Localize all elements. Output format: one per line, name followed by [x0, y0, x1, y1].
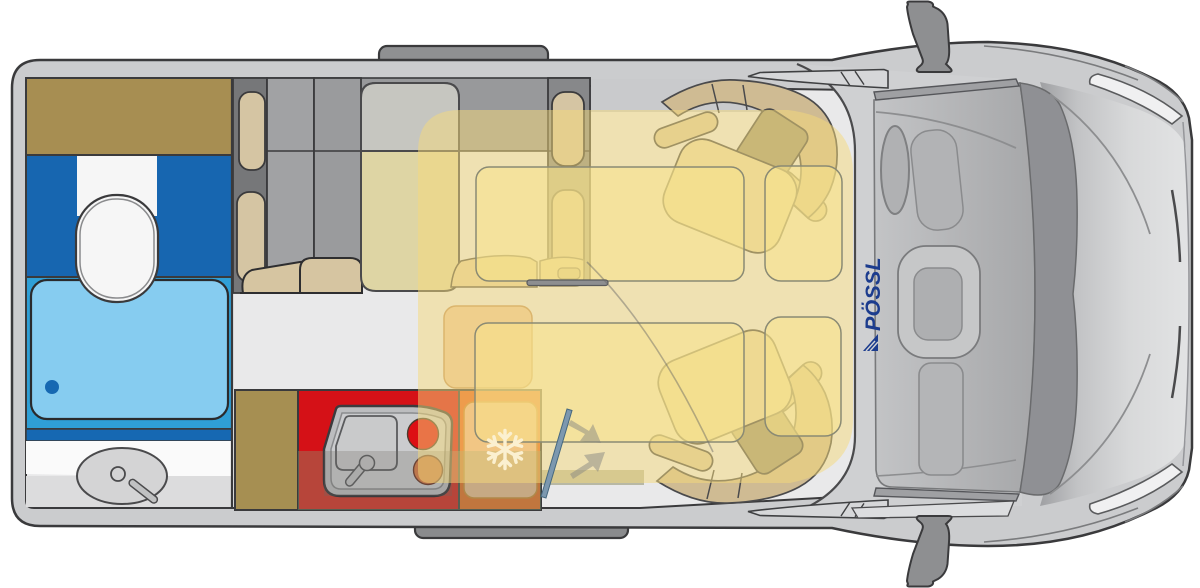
svg-text:PÖSSL: PÖSSL [860, 257, 885, 331]
